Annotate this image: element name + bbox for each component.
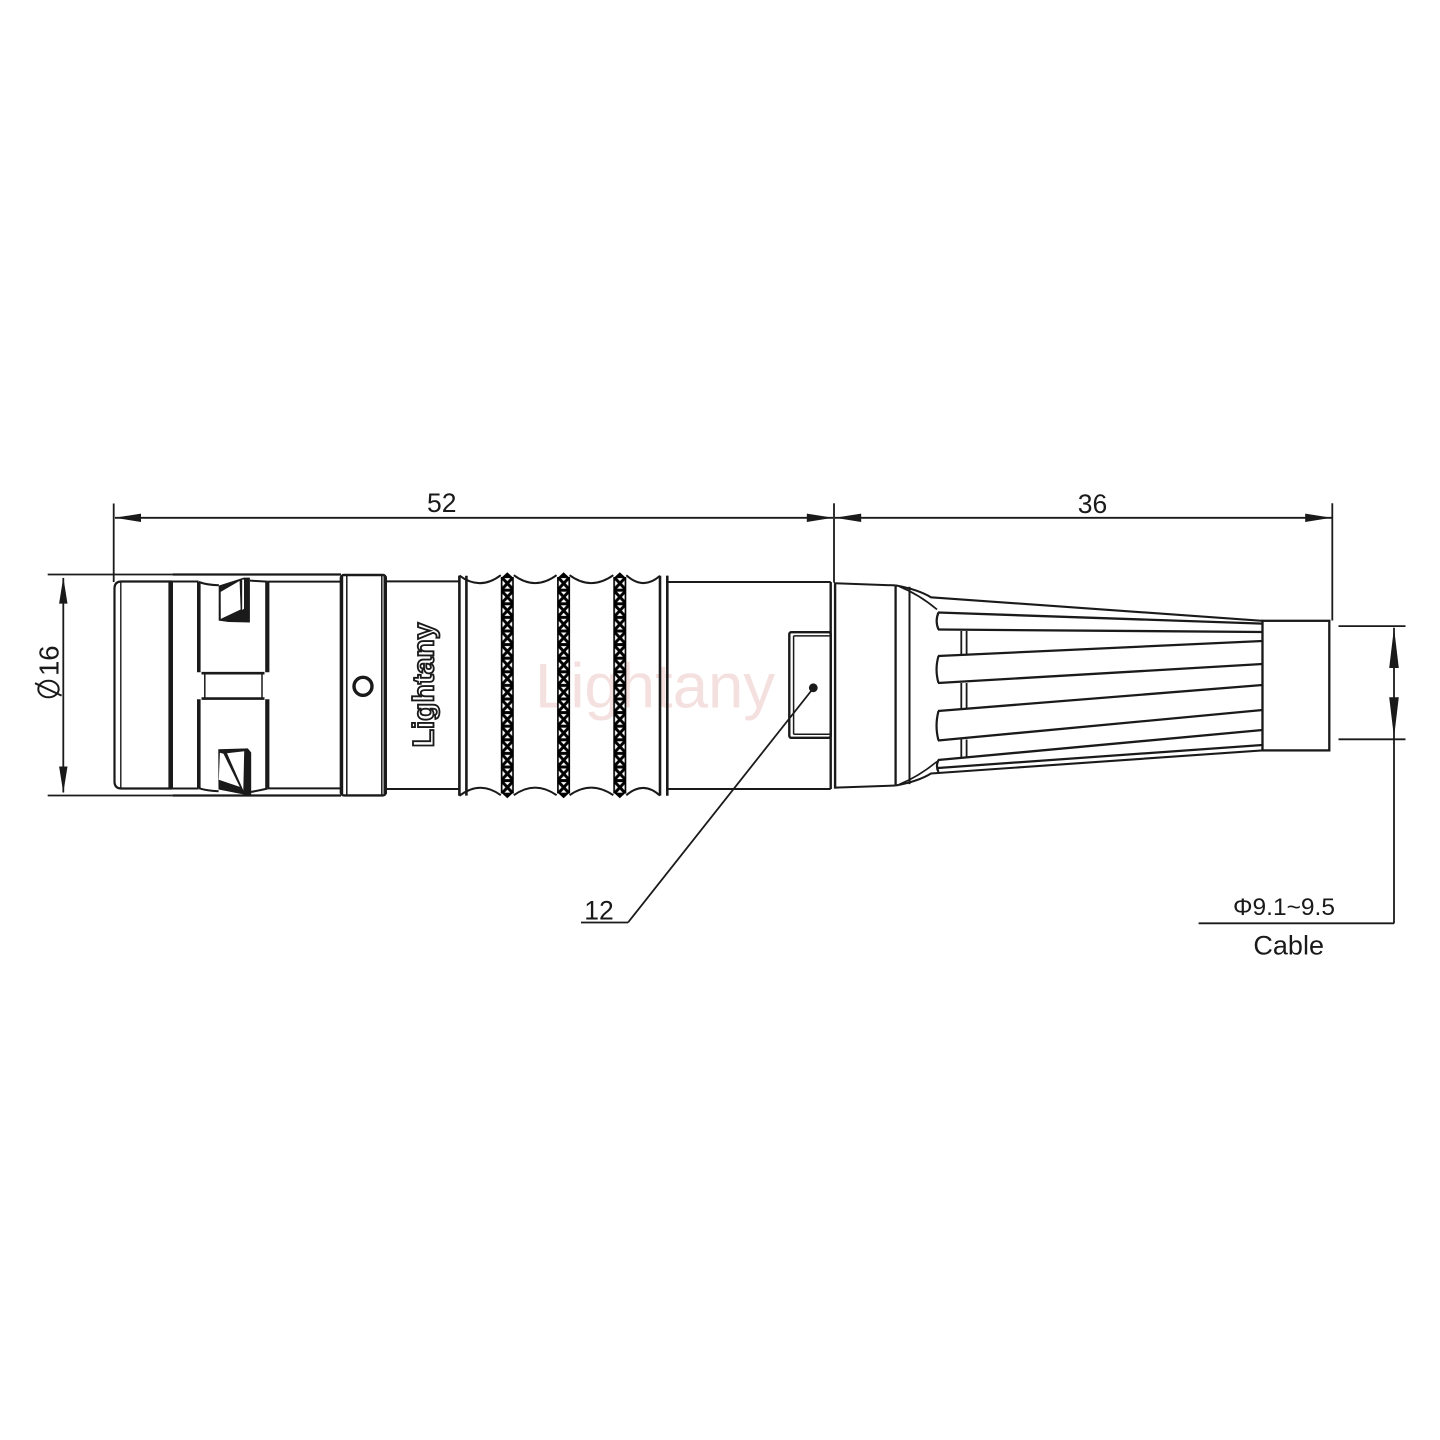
svg-text:12: 12 — [584, 895, 613, 925]
svg-text:52: 52 — [427, 488, 456, 518]
svg-text:36: 36 — [1078, 489, 1107, 519]
svg-text:16: 16 — [34, 645, 65, 676]
svg-text:Φ9.1~9.5: Φ9.1~9.5 — [1233, 894, 1335, 921]
svg-text:Lightany: Lightany — [408, 622, 441, 747]
svg-text:Lightany: Lightany — [535, 652, 775, 722]
svg-text:Cable: Cable — [1253, 931, 1324, 961]
